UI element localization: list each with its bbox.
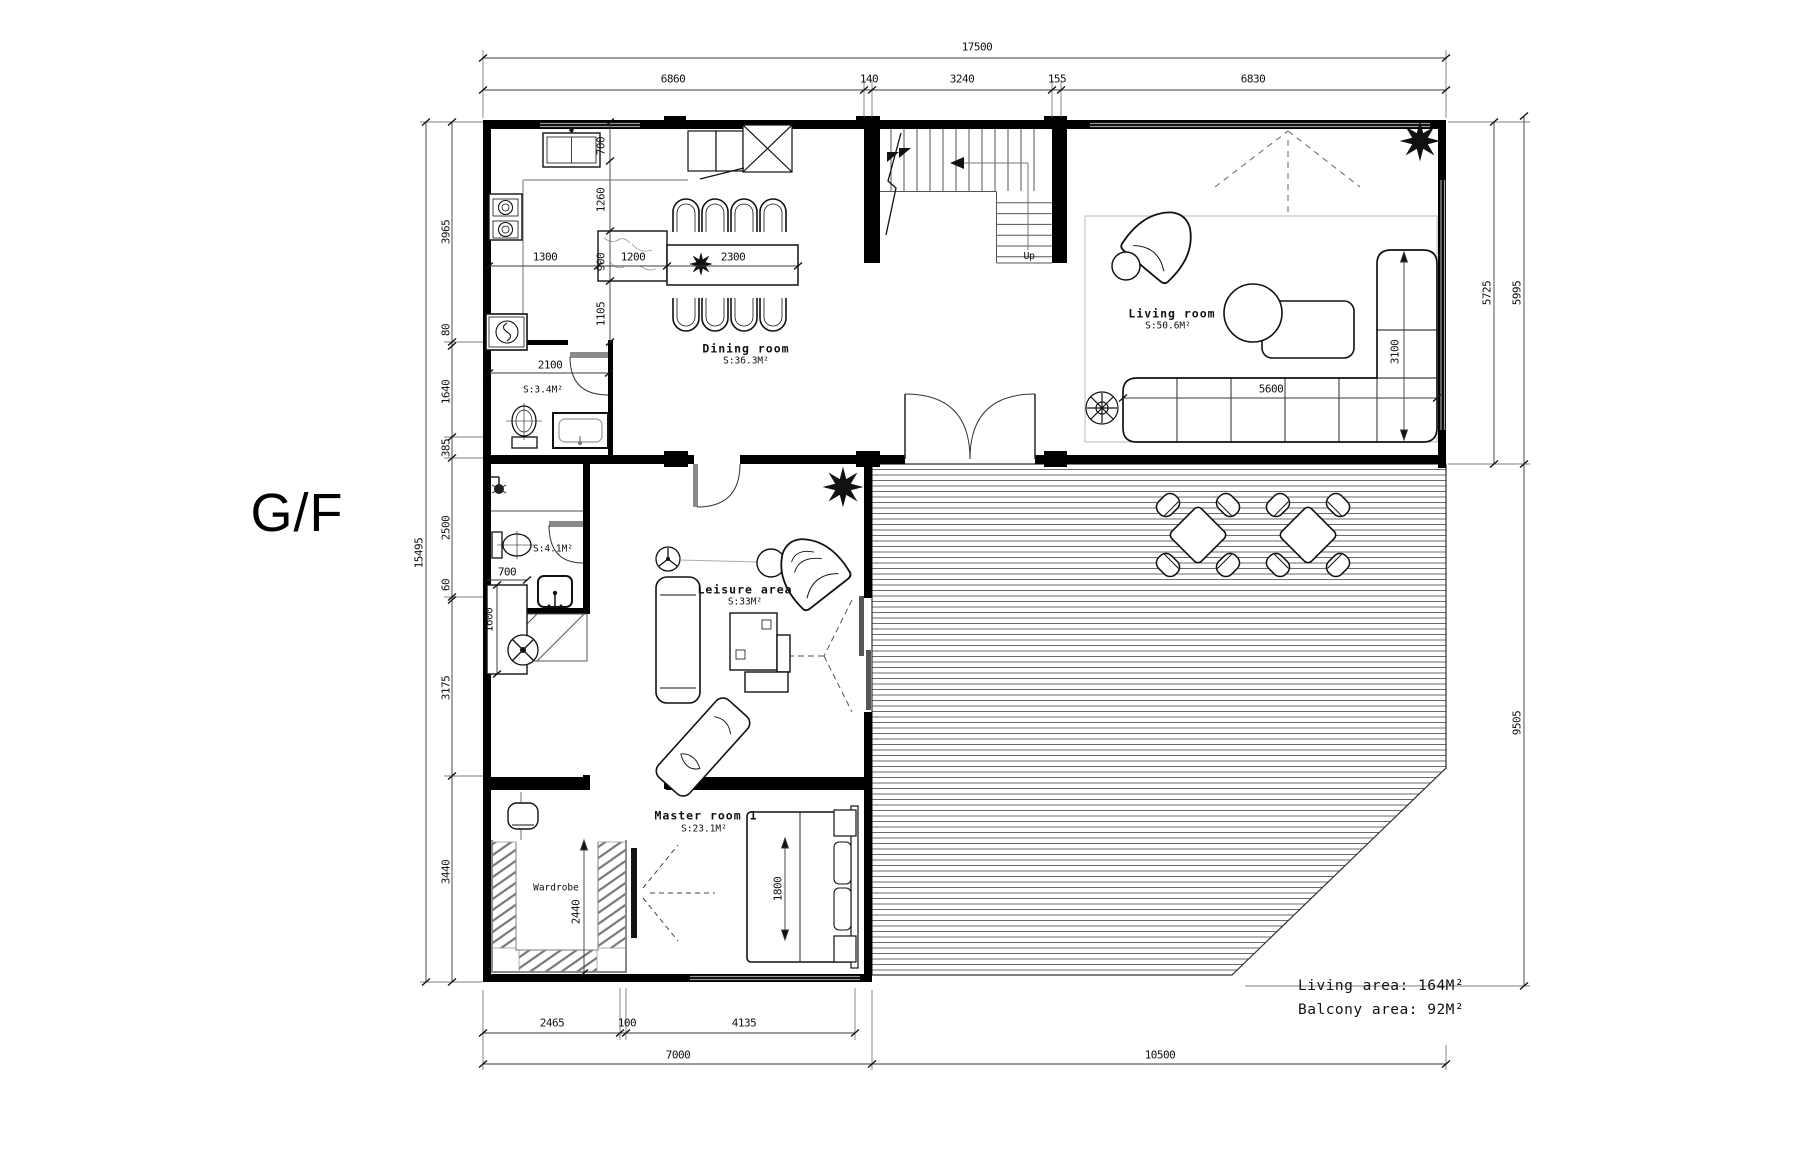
pillow [834, 842, 851, 884]
coffee-table [1224, 284, 1282, 342]
balcony-deck [872, 464, 1446, 975]
dim-kitchen-v1: 700 [596, 137, 607, 155]
floor-title: G/F [251, 486, 344, 540]
dim-left-total: 15495 [414, 538, 425, 569]
vanity-sink [553, 413, 608, 448]
plant-icon [1400, 121, 1441, 162]
floor-plan-drawing [0, 0, 1820, 1154]
dim-kitchen-h1: 1300 [533, 252, 558, 263]
summary-living-area: Living area: 164M² [1298, 979, 1464, 994]
dim-kitchen-h2: 1200 [621, 252, 646, 263]
wardrobe-unit [492, 840, 626, 972]
nightstand [834, 936, 856, 962]
dim-right-lower: 9505 [1512, 711, 1523, 736]
bathroom-1 [506, 403, 608, 448]
kitchen-sink [543, 127, 600, 167]
room-area-bath1: S:3.4M² [523, 385, 563, 395]
appliance [486, 314, 527, 350]
dim-left-8: 3440 [441, 860, 452, 885]
dim-right-outer: 5995 [1512, 281, 1523, 306]
window-projection-dashes [1215, 131, 1360, 215]
pillow [834, 888, 851, 930]
room-label-living: Living room [1128, 308, 1215, 320]
dim-left-7: 3175 [441, 676, 452, 701]
dim-bottom-3: 4135 [732, 1018, 757, 1029]
dim-kitchen-h3: 2300 [721, 252, 746, 263]
room-area-dining: S:36.3M² [723, 356, 769, 366]
dim-left-5: 2500 [441, 516, 452, 541]
stair-break-line [886, 133, 901, 235]
summary-balcony-area: Balcony area: 92M² [1298, 1003, 1464, 1018]
room-area-master: S:23.1M² [681, 824, 727, 834]
bed [747, 806, 858, 968]
dim-desk-width: 700 [498, 567, 516, 578]
sink-icon [538, 576, 572, 609]
dim-bottom-total-1: 7000 [666, 1050, 691, 1061]
tall-cabinets [688, 125, 792, 179]
dim-sofa-depth: 3100 [1390, 340, 1401, 365]
floor-lamp-icon [656, 547, 680, 571]
dim-top-1: 6860 [661, 74, 686, 85]
table-centerpiece-icon [689, 252, 713, 276]
leisure-area-furniture [487, 525, 853, 800]
room-area-living: S:50.6M² [1145, 321, 1191, 331]
staircase [880, 129, 1052, 263]
dim-kitchen-v3: 900 [596, 253, 607, 271]
ceiling-fan-icon [1086, 392, 1118, 424]
dining-table-set [667, 199, 798, 331]
dim-bath1-width: 2100 [538, 360, 563, 371]
dim-bottom-1: 2465 [540, 1018, 565, 1029]
plant-icon [823, 467, 864, 508]
dim-bottom-2: 100 [618, 1018, 636, 1029]
swivel-chair-icon [508, 635, 538, 665]
room-label-wardrobe: Wardrobe [533, 883, 579, 893]
dim-left-3: 1640 [441, 380, 452, 405]
dim-top-5: 6830 [1241, 74, 1266, 85]
dim-sofa-length: 5600 [1259, 384, 1284, 395]
nightstand [834, 810, 856, 836]
dim-right-inner: 5725 [1482, 281, 1493, 306]
dim-desk-length: 1600 [484, 608, 495, 633]
toilet-icon [506, 403, 542, 448]
stair-arrow-icon [950, 157, 964, 169]
sliding-door [788, 596, 871, 712]
room-area-bath2: S:4.1M² [533, 544, 573, 554]
dim-left-2: 80 [441, 324, 452, 336]
dim-bottom-total-2: 10500 [1145, 1050, 1176, 1061]
dim-kitchen-v4: 1105 [596, 302, 607, 327]
shower-head-icon [491, 477, 506, 494]
toilet-icon [492, 531, 534, 559]
round-table [1112, 252, 1140, 280]
room-area-leisure: S:33M² [728, 597, 762, 607]
dressing-chair [508, 803, 538, 829]
dim-left-4: 385 [441, 439, 452, 457]
stair-direction-line [950, 157, 1028, 250]
dim-top-2: 140 [860, 74, 878, 85]
dim-left-1: 3965 [441, 220, 452, 245]
tv-panel [631, 845, 715, 941]
dim-bed-width: 1800 [773, 877, 784, 902]
room-label-master: Master room 1 [654, 810, 757, 822]
dim-top-total: 17500 [962, 42, 993, 53]
floor-plan-page: G/F 17500 6860 140 3240 155 6830 15495 3… [0, 0, 1820, 1154]
tea-table-set [730, 613, 790, 692]
dim-left-6: 60 [441, 579, 452, 591]
room-label-leisure: Leisure area [697, 584, 792, 596]
room-label-dining: Dining room [702, 343, 789, 355]
dim-wardrobe-depth: 2440 [571, 900, 582, 925]
chaise-sofa [653, 577, 754, 800]
dim-top-3: 3240 [950, 74, 975, 85]
dim-top-4: 155 [1048, 74, 1066, 85]
stairs-up-label: Up [1023, 252, 1034, 262]
stove [489, 194, 522, 240]
dim-kitchen-v2: 1260 [596, 188, 607, 213]
